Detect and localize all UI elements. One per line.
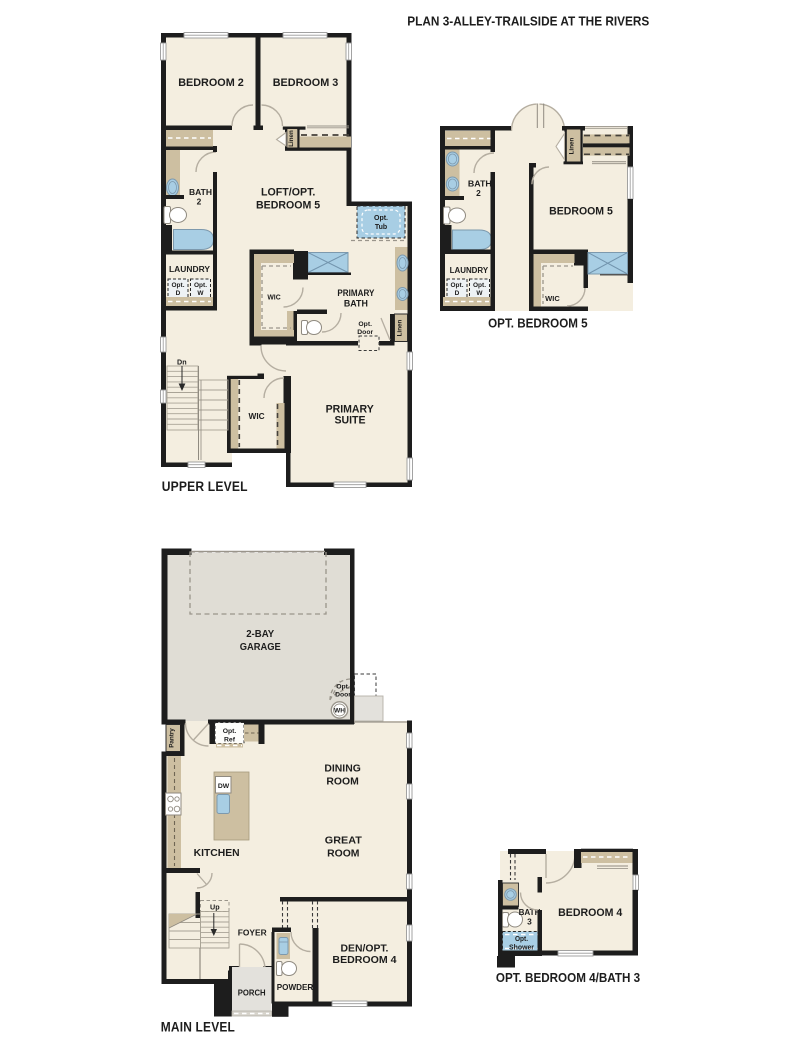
svg-text:Tub: Tub: [375, 224, 387, 231]
svg-text:BEDROOM 4: BEDROOM 4: [332, 955, 396, 966]
svg-text:Shower: Shower: [509, 945, 534, 952]
svg-text:DINING: DINING: [324, 763, 360, 775]
svg-text:WH: WH: [334, 708, 345, 715]
svg-text:2: 2: [476, 188, 481, 198]
svg-text:Opt.: Opt.: [336, 684, 350, 691]
svg-text:Opt.: Opt.: [194, 282, 207, 289]
svg-text:BEDROOM 4: BEDROOM 4: [558, 907, 623, 919]
svg-text:Linen: Linen: [397, 319, 404, 336]
svg-text:Dn: Dn: [177, 358, 187, 367]
svg-text:WIC: WIC: [267, 292, 280, 301]
svg-text:DEN/OPT.: DEN/OPT.: [341, 944, 389, 955]
svg-text:BEDROOM 2: BEDROOM 2: [178, 77, 244, 89]
svg-text:Opt.: Opt.: [515, 936, 528, 943]
svg-text:PORCH: PORCH: [238, 988, 266, 998]
svg-text:WIC: WIC: [545, 294, 560, 303]
svg-text:KITCHEN: KITCHEN: [194, 847, 240, 859]
svg-text:POWDER: POWDER: [277, 982, 314, 992]
svg-text:Door: Door: [335, 692, 351, 699]
svg-text:OPT. BEDROOM 5: OPT. BEDROOM 5: [488, 316, 588, 330]
svg-text:PRIMARY: PRIMARY: [337, 288, 374, 298]
svg-text:FOYER: FOYER: [238, 928, 268, 938]
svg-text:BEDROOM 5: BEDROOM 5: [549, 206, 613, 218]
svg-text:OPT. BEDROOM 4/BATH 3: OPT. BEDROOM 4/BATH 3: [496, 971, 640, 985]
svg-text:UPPER LEVEL: UPPER LEVEL: [162, 479, 248, 494]
svg-text:BATH: BATH: [468, 179, 492, 189]
svg-text:Opt.: Opt.: [374, 215, 388, 222]
svg-text:BEDROOM 5: BEDROOM 5: [256, 199, 320, 211]
svg-text:2: 2: [197, 197, 202, 207]
svg-text:LAUNDRY: LAUNDRY: [169, 264, 210, 274]
svg-text:GREAT: GREAT: [325, 835, 363, 847]
svg-text:MAIN LEVEL: MAIN LEVEL: [161, 1020, 235, 1035]
svg-text:Up: Up: [210, 903, 220, 912]
svg-text:GARAGE: GARAGE: [240, 641, 281, 653]
svg-text:Opt.: Opt.: [358, 321, 372, 328]
svg-text:Opt.: Opt.: [172, 282, 185, 289]
svg-text:Linen: Linen: [569, 137, 576, 154]
svg-text:Opt.: Opt.: [451, 282, 464, 289]
svg-text:Opt.: Opt.: [473, 282, 486, 289]
svg-text:Linen: Linen: [288, 130, 295, 147]
svg-text:PLAN 3-ALLEY-TRAILSIDE AT THE: PLAN 3-ALLEY-TRAILSIDE AT THE RIVERS: [407, 13, 649, 28]
svg-text:LAUNDRY: LAUNDRY: [450, 265, 489, 275]
svg-text:WIC: WIC: [249, 412, 265, 421]
svg-text:Door: Door: [357, 329, 373, 336]
svg-text:D: D: [455, 290, 460, 297]
svg-text:BEDROOM 3: BEDROOM 3: [273, 77, 339, 89]
svg-text:DW: DW: [218, 783, 230, 790]
svg-text:3: 3: [527, 917, 532, 927]
svg-text:D: D: [176, 290, 181, 297]
svg-text:BATH: BATH: [344, 299, 368, 309]
svg-text:Ref: Ref: [224, 737, 236, 744]
svg-text:LOFT/OPT.: LOFT/OPT.: [261, 186, 315, 198]
svg-text:BATH: BATH: [189, 187, 212, 197]
svg-text:2-BAY: 2-BAY: [246, 628, 274, 640]
svg-text:ROOM: ROOM: [326, 776, 359, 788]
svg-text:SUITE: SUITE: [334, 415, 365, 427]
svg-text:ROOM: ROOM: [327, 848, 360, 860]
svg-text:W: W: [476, 290, 483, 297]
svg-text:W: W: [197, 290, 204, 297]
svg-text:Opt.: Opt.: [223, 728, 237, 735]
svg-text:Pantry: Pantry: [169, 728, 176, 748]
